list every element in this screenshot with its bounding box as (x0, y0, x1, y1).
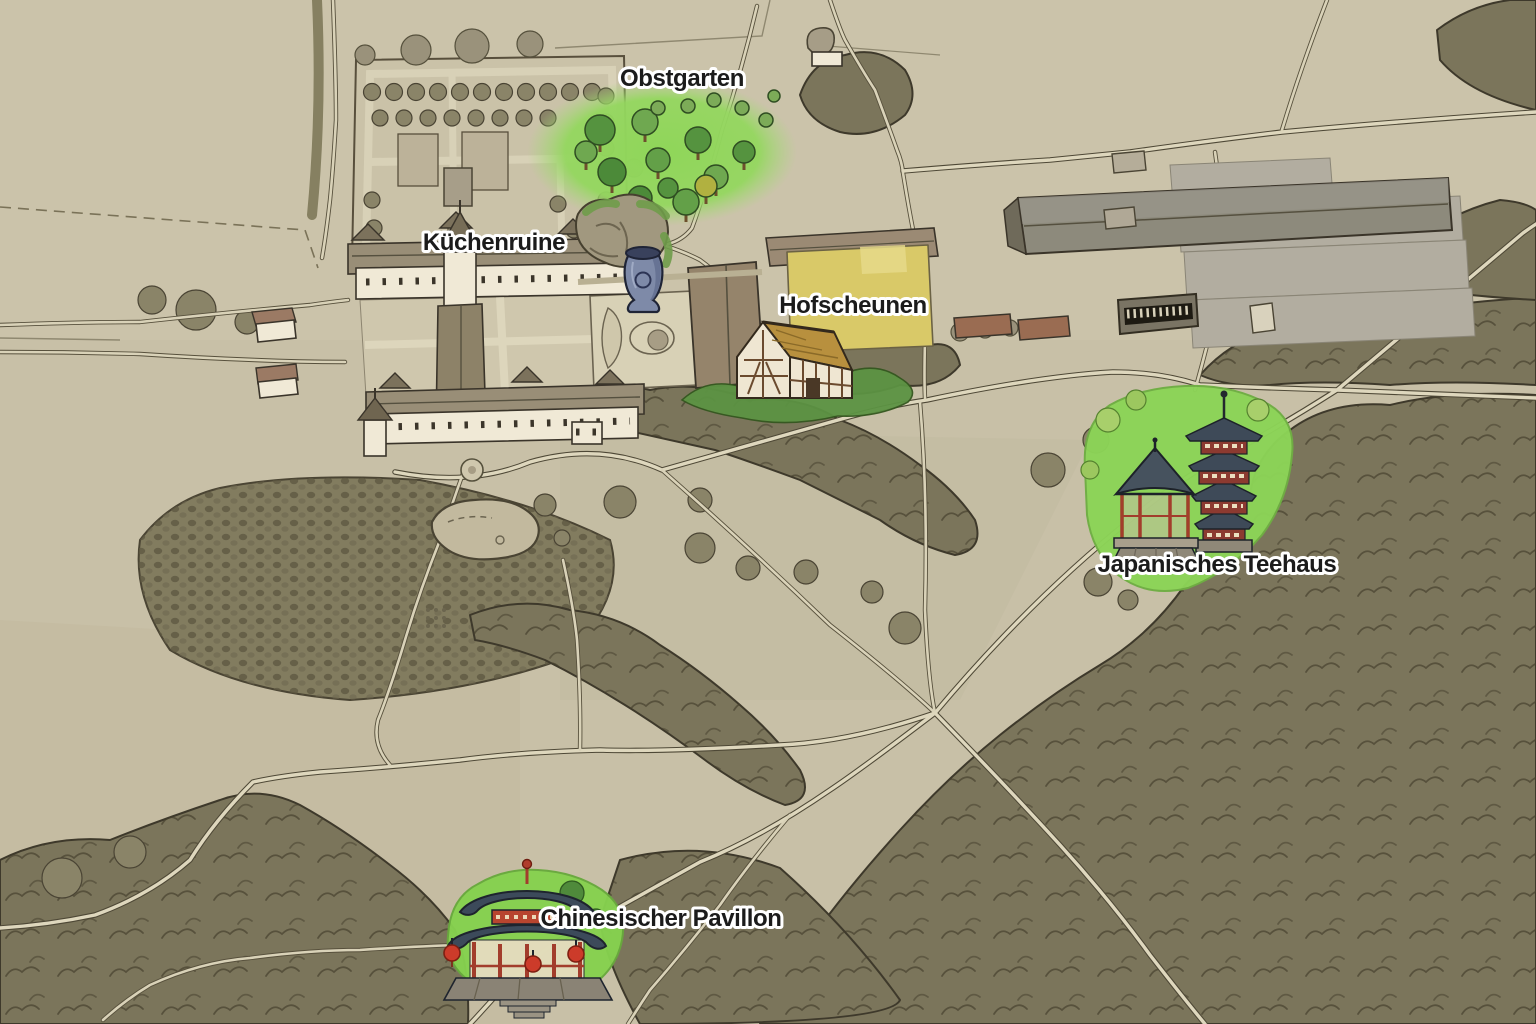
label-chinesischer-pavillon[interactable]: Chinesischer Pavillon (540, 905, 781, 932)
illustrated-park-map: Obstgarten Küchenruine Hofscheunen Japan… (0, 0, 1536, 1024)
pond (432, 499, 539, 559)
urn-vase-icon (625, 247, 663, 312)
garden-pavilion-building (444, 168, 472, 206)
small-white-building (572, 422, 602, 444)
label-kuechenruine[interactable]: Küchenruine (423, 229, 565, 256)
obstgarten-orchard[interactable] (527, 78, 797, 226)
dot-grove (426, 608, 446, 628)
label-hofscheunen[interactable]: Hofscheunen (779, 292, 927, 319)
label-japanisches-teehaus[interactable]: Japanisches Teehaus (1098, 551, 1337, 578)
label-obstgarten[interactable]: Obstgarten (620, 65, 744, 92)
half-timbered-barn-icon (737, 322, 852, 398)
stable-with-windows (1118, 294, 1198, 334)
